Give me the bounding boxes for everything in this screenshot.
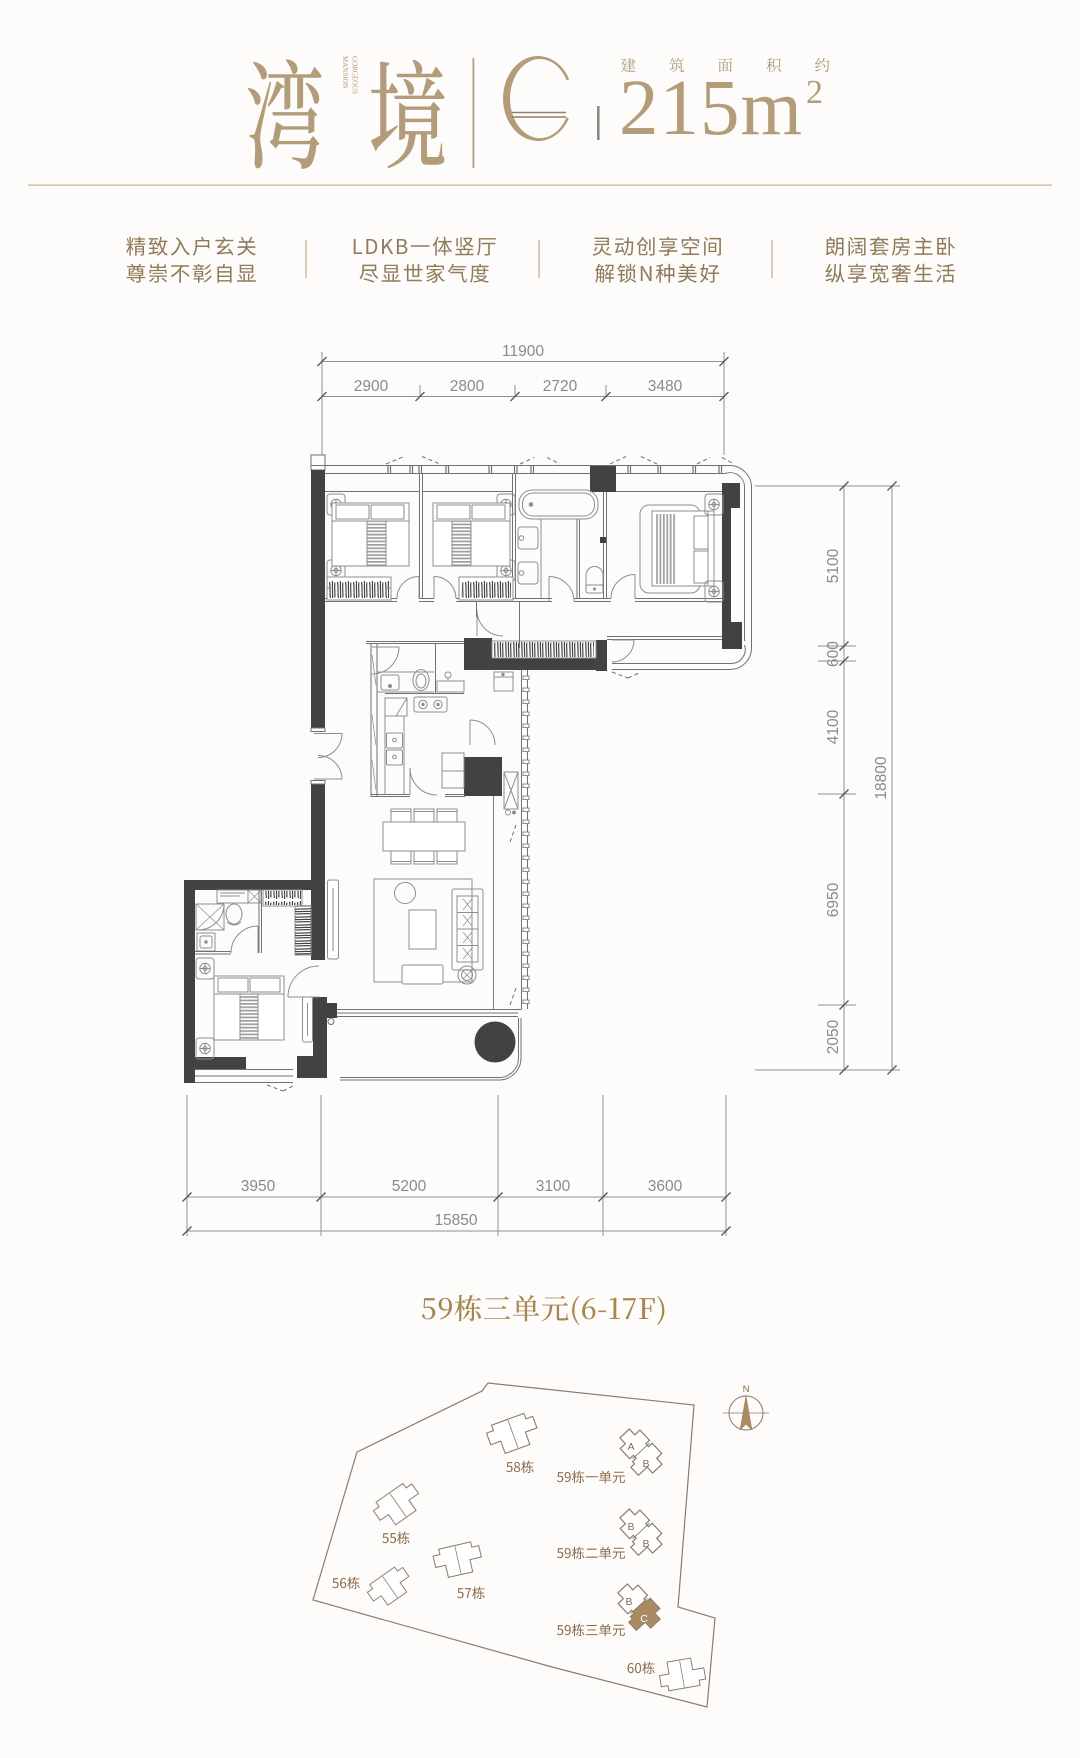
svg-text:3600: 3600 xyxy=(648,1178,683,1195)
svg-text:15850: 15850 xyxy=(434,1212,477,1229)
svg-text:2720: 2720 xyxy=(543,378,578,395)
svg-text:18800: 18800 xyxy=(873,756,890,799)
svg-text:2: 2 xyxy=(806,74,823,111)
svg-text:B: B xyxy=(642,1458,649,1470)
svg-text:C: C xyxy=(640,1613,648,1625)
svg-text:600: 600 xyxy=(825,641,842,667)
svg-text:6950: 6950 xyxy=(825,882,842,917)
svg-text:215m: 215m xyxy=(619,65,803,152)
svg-text:B: B xyxy=(625,1596,632,1608)
svg-text:5200: 5200 xyxy=(392,1178,427,1195)
svg-text:2050: 2050 xyxy=(825,1019,842,1054)
svg-text:GORGEOUS: GORGEOUS xyxy=(351,56,359,94)
svg-text:MANSION: MANSION xyxy=(341,56,349,89)
svg-text:B: B xyxy=(642,1538,649,1550)
svg-text:2900: 2900 xyxy=(354,378,389,395)
svg-text:4100: 4100 xyxy=(825,709,842,744)
svg-text:3480: 3480 xyxy=(648,378,683,395)
svg-text:5100: 5100 xyxy=(825,548,842,583)
svg-text:A: A xyxy=(627,1441,634,1453)
svg-text:3100: 3100 xyxy=(536,1178,571,1195)
svg-text:N: N xyxy=(743,1384,750,1395)
svg-text:3950: 3950 xyxy=(241,1178,276,1195)
svg-text:B: B xyxy=(627,1521,634,1533)
svg-text:2800: 2800 xyxy=(450,378,485,395)
svg-text:11900: 11900 xyxy=(502,343,544,360)
